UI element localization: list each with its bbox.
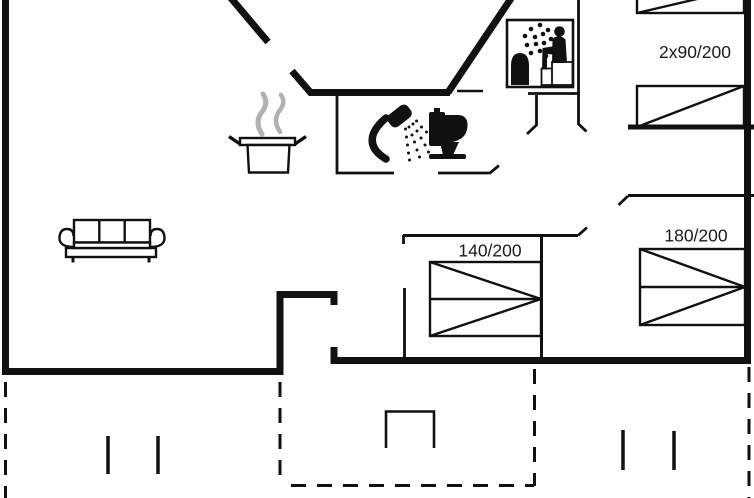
terrace-dashed-boundary [6,367,750,498]
sauna-icon [507,20,573,87]
bed-size-label-2x90: 2x90/200 [659,42,731,62]
bed-90x200-icon [637,86,744,127]
bathroom-south-wall-door-swing-tick [438,166,499,174]
terrace-furniture-icon [386,412,434,449]
toilet-icon [429,108,468,159]
exterior-wall-left-bottom [6,0,335,372]
sauna-bench [552,62,573,85]
floor-plan-page: 2x90/200 180/200 140/200 [0,0,754,498]
bed-180x200-icon [640,249,745,325]
bed-140x200-icon [430,262,541,336]
exterior-wall-diagonal-right [448,0,512,93]
sofa-icon [59,220,164,263]
shower-spray-dots [404,120,432,162]
sauna-door-jamb-swing-tick [527,95,537,134]
shower-icon [372,102,432,161]
sauna-bench-step [542,69,553,86]
exterior-wall-diagonal-mid-top [292,71,450,93]
steam-icon [258,94,283,134]
cooking-pot-icon [229,137,306,173]
bed-size-label-140: 140/200 [458,241,522,261]
bedroom-140-door-swing-tick [578,228,587,236]
bed-size-label-180: 180/200 [664,226,728,246]
hall-east-wall-door-swing-tick [579,0,587,132]
exterior-wall-diagonal-left [230,0,268,42]
bed-90x200-top-icon [637,0,744,13]
exterior-walls [6,0,748,372]
bedroom-180-door-swing-tick [619,196,629,205]
terrace-posts [108,430,674,474]
floor-plan-canvas: 2x90/200 180/200 140/200 [0,0,754,498]
sauna-heater [511,53,529,85]
